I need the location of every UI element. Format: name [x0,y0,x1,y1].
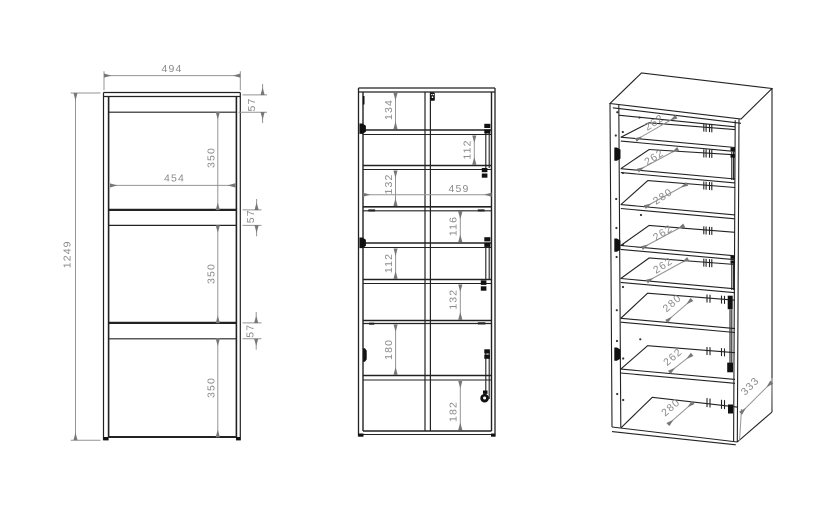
svg-text:350: 350 [205,263,217,284]
svg-text:494: 494 [162,63,183,75]
svg-text:350: 350 [205,377,217,398]
svg-text:134: 134 [383,99,395,120]
svg-text:262: 262 [642,112,666,133]
svg-text:350: 350 [205,147,217,168]
svg-text:57: 57 [245,324,257,338]
svg-text:262: 262 [661,346,685,369]
svg-text:116: 116 [448,216,460,236]
svg-text:280: 280 [659,396,683,419]
svg-text:182: 182 [448,401,460,422]
svg-text:112: 112 [462,139,474,159]
svg-text:57: 57 [245,209,257,223]
svg-text:180: 180 [383,339,395,360]
svg-text:1249: 1249 [62,240,74,268]
svg-text:132: 132 [383,174,395,195]
svg-text:459: 459 [449,183,470,195]
svg-text:57: 57 [246,98,258,112]
svg-text:454: 454 [164,173,185,185]
svg-text:280: 280 [651,186,675,207]
svg-text:333: 333 [739,375,762,398]
svg-text:112: 112 [383,253,395,273]
svg-text:132: 132 [448,289,460,310]
